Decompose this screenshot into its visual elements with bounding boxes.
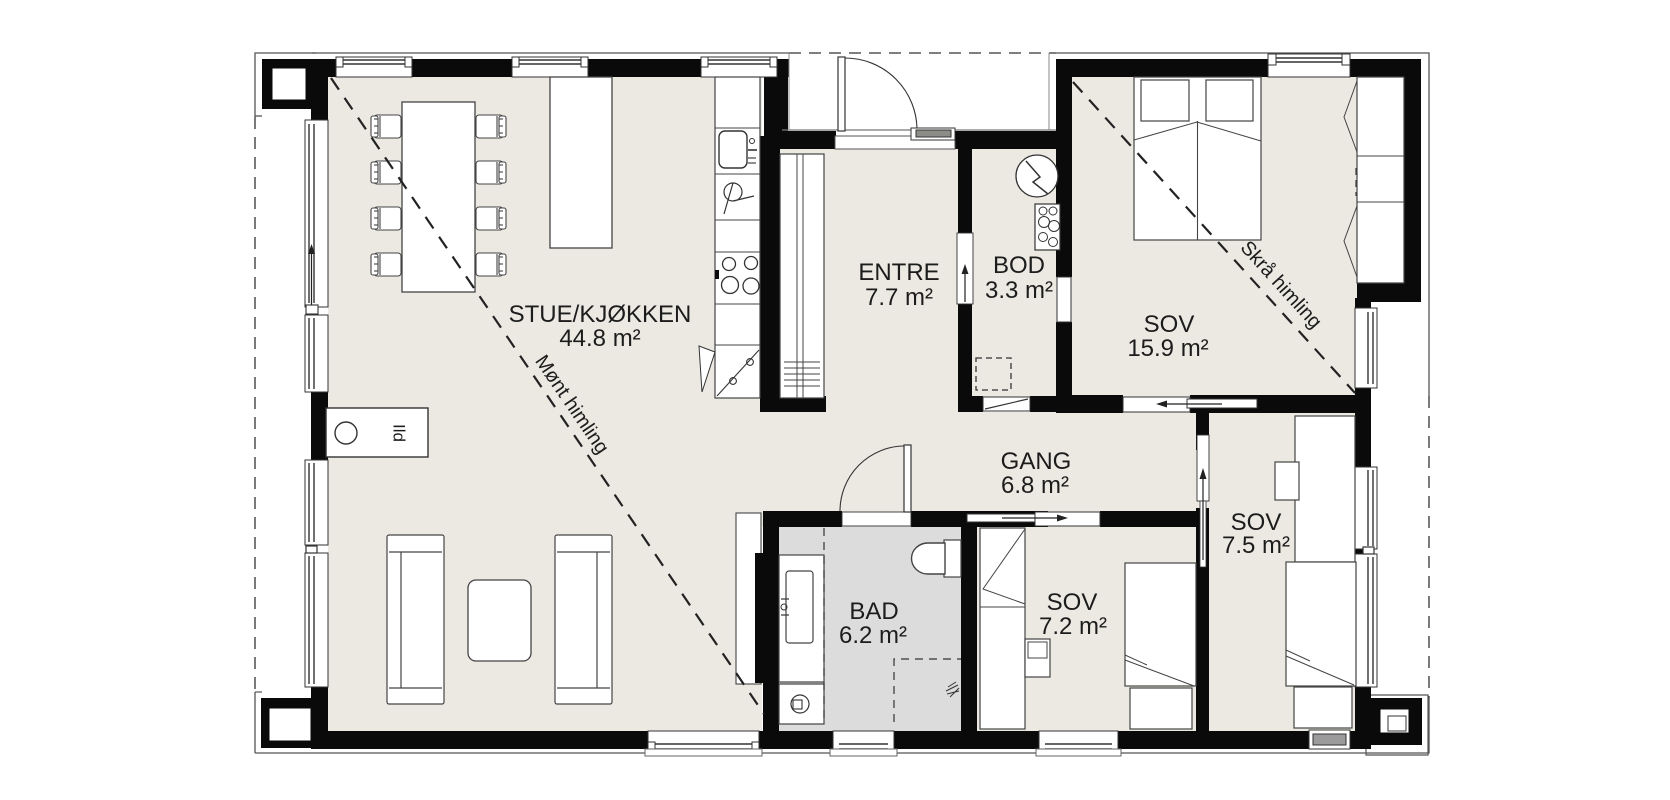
svg-text:SOV: SOV bbox=[1144, 311, 1195, 338]
svg-text:7.7 m²: 7.7 m² bbox=[865, 284, 933, 311]
svg-text:STUE/KJØKKEN: STUE/KJØKKEN bbox=[509, 301, 692, 328]
svg-text:15.9 m²: 15.9 m² bbox=[1127, 335, 1208, 362]
svg-text:6.2 m²: 6.2 m² bbox=[839, 622, 907, 649]
svg-text:BAD: BAD bbox=[849, 598, 898, 625]
svg-text:44.8 m²: 44.8 m² bbox=[559, 325, 640, 352]
svg-text:6.8 m²: 6.8 m² bbox=[1001, 472, 1069, 499]
svg-text:BOD: BOD bbox=[993, 252, 1045, 279]
svg-text:3.3 m²: 3.3 m² bbox=[985, 277, 1053, 304]
svg-text:Ild: Ild bbox=[390, 424, 409, 442]
svg-text:7.5 m²: 7.5 m² bbox=[1222, 532, 1290, 559]
svg-text:ENTRE: ENTRE bbox=[858, 259, 939, 286]
svg-text:SOV: SOV bbox=[1047, 589, 1098, 616]
svg-text:GANG: GANG bbox=[1001, 448, 1072, 475]
svg-text:7.2 m²: 7.2 m² bbox=[1039, 613, 1107, 640]
